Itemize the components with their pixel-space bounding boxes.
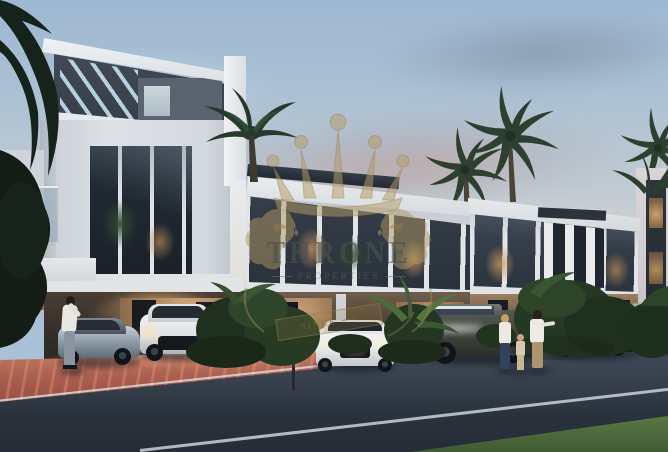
dusk-townhouse-render: THRONE PROPERTIES SINCE: [0, 0, 668, 452]
foliage-layer: [0, 0, 668, 452]
person-man: [527, 310, 557, 374]
person-by-car: [58, 296, 84, 376]
